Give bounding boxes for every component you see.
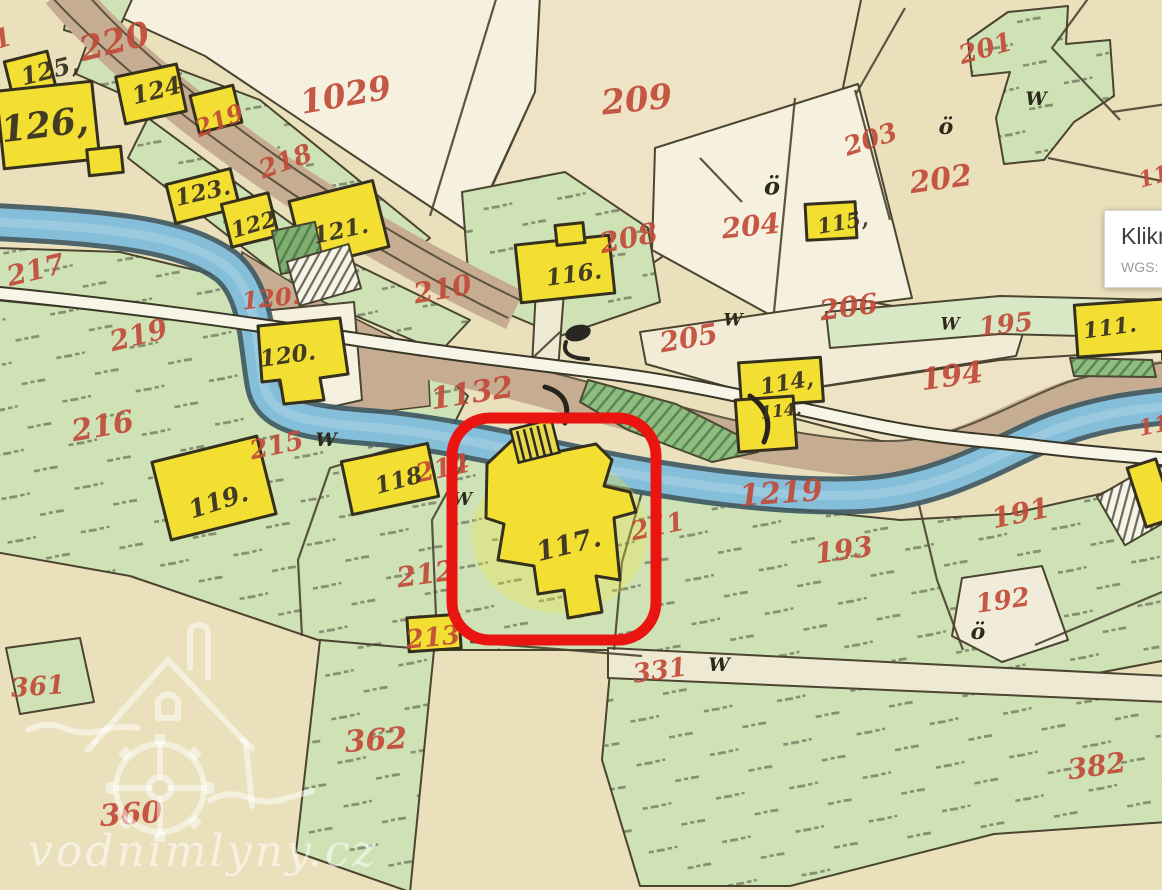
parcel-number-362: 362 (343, 721, 408, 760)
building-126-annex (87, 146, 124, 175)
parcel-number-213: 213 (403, 620, 461, 656)
parcel-number-195: 195 (977, 307, 1034, 343)
map-symbol-W: W (940, 315, 961, 335)
map-symbol-ö: ö (764, 172, 780, 201)
map-symbol-ö: ö (971, 619, 986, 645)
map-symbol-W: W (708, 654, 731, 676)
map-symbol-W: W (1025, 88, 1048, 110)
building-116-annex (555, 223, 585, 246)
parcel-area (1070, 358, 1156, 377)
map-viewer: 2201029209201203202204219218217219120.21… (0, 0, 1162, 890)
parcel-number-209: 209 (598, 76, 674, 123)
parcel-number-120: 120. (240, 281, 301, 316)
map-symbol-W: W (723, 311, 744, 331)
parcel-number-11: 11 (1136, 410, 1162, 442)
map-symbol-W: W (315, 429, 338, 451)
parcel-number-204: 204 (719, 207, 782, 246)
parcel-number-361: 361 (10, 670, 66, 704)
tooltip-title: Klikni (1121, 223, 1162, 250)
map-tooltip: Klikni WGS: 50° (1104, 210, 1162, 288)
map-symbol-ö: ö (939, 114, 954, 140)
tooltip-coordinates: WGS: 50° (1121, 259, 1162, 275)
parcel-number-1219: 1219 (738, 473, 824, 514)
historic-cadastre-map[interactable]: 2201029209201203202204219218217219120.21… (0, 0, 1162, 890)
watermark-text: vodnimlyny.cz (28, 826, 379, 877)
